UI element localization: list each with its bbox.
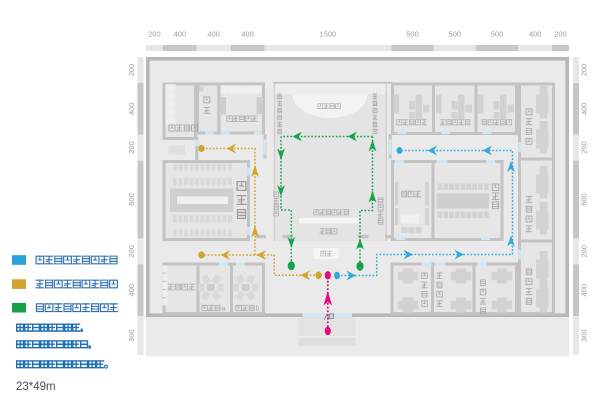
svg-text:23*49m: 23*49m bbox=[16, 381, 56, 393]
svg-text:200: 200 bbox=[127, 245, 136, 258]
svg-text:200: 200 bbox=[127, 141, 136, 154]
svg-text:a: a bbox=[222, 306, 226, 313]
svg-text:500: 500 bbox=[449, 30, 462, 39]
svg-text:b: b bbox=[256, 306, 260, 313]
svg-text:500: 500 bbox=[406, 30, 419, 39]
svg-text:200: 200 bbox=[148, 30, 161, 39]
svg-text:200: 200 bbox=[579, 64, 588, 77]
svg-text:600: 600 bbox=[127, 193, 136, 206]
svg-text:400: 400 bbox=[241, 30, 254, 39]
svg-text:200: 200 bbox=[579, 141, 588, 154]
svg-text:400: 400 bbox=[174, 30, 187, 39]
svg-text:1500: 1500 bbox=[320, 30, 337, 39]
svg-text:400: 400 bbox=[127, 284, 136, 297]
svg-text:400: 400 bbox=[579, 284, 588, 297]
svg-text:300: 300 bbox=[127, 329, 136, 342]
svg-text:400: 400 bbox=[529, 30, 542, 39]
svg-text:200: 200 bbox=[554, 30, 567, 39]
svg-text:400: 400 bbox=[127, 103, 136, 116]
svg-text:300: 300 bbox=[579, 329, 588, 342]
svg-text:400: 400 bbox=[579, 103, 588, 116]
svg-text:200: 200 bbox=[127, 64, 136, 77]
svg-text:500: 500 bbox=[491, 30, 504, 39]
svg-text:400: 400 bbox=[207, 30, 220, 39]
svg-text:600: 600 bbox=[579, 193, 588, 206]
svg-text:200: 200 bbox=[579, 245, 588, 258]
